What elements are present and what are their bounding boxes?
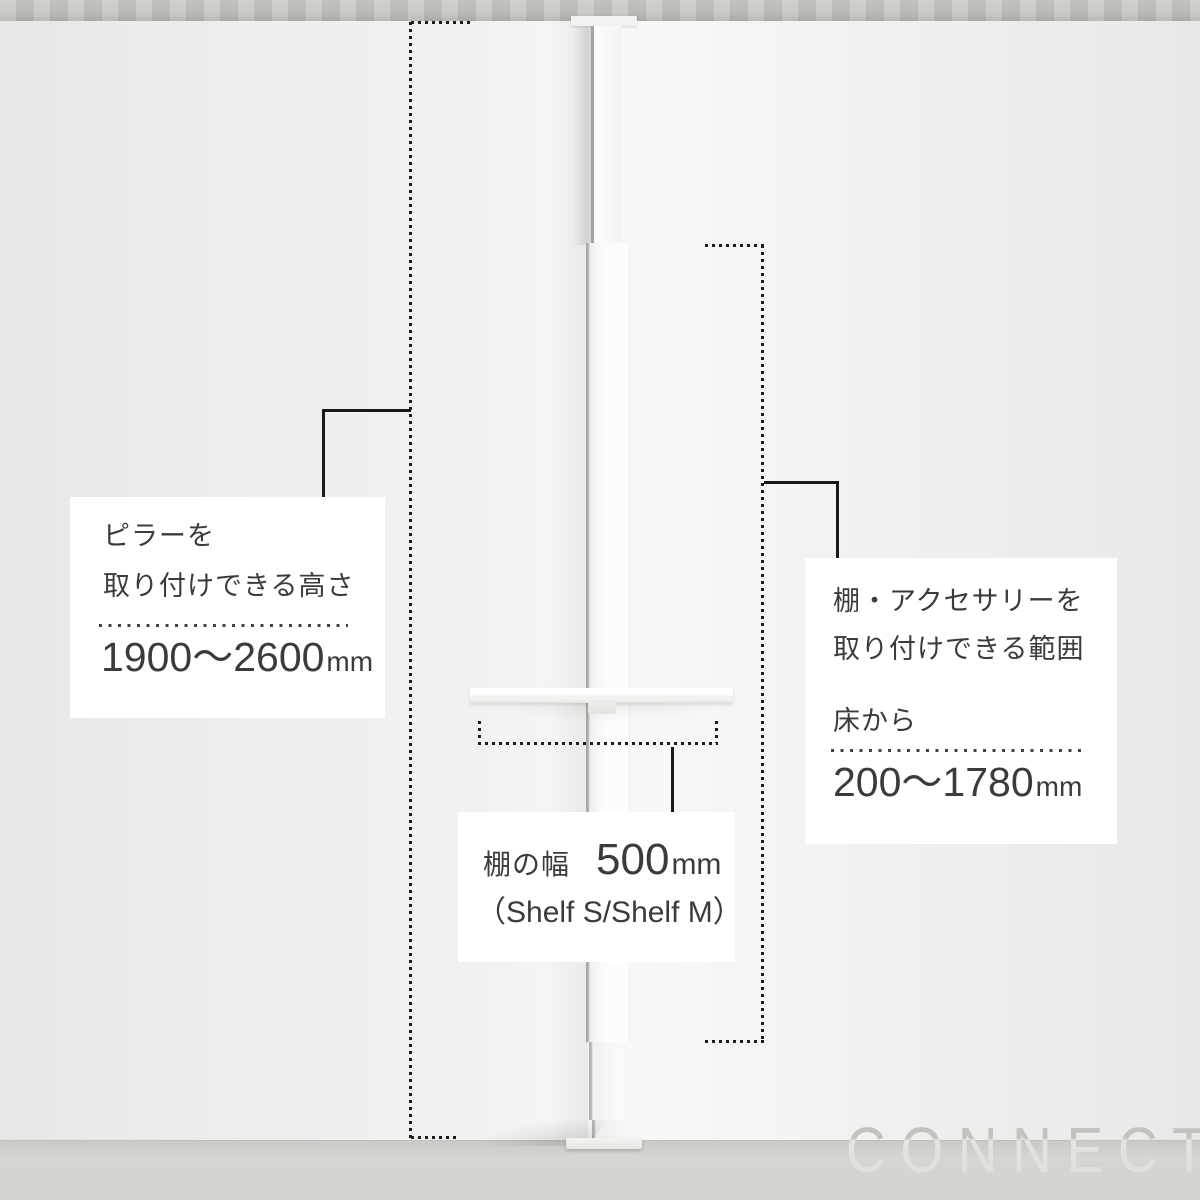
pillar-height-value-row: 1900〜2600mm xyxy=(101,637,373,678)
connect-watermark: CONNECT xyxy=(846,1110,1200,1190)
pole-upper-section xyxy=(594,26,622,245)
mount-range-unit: mm xyxy=(1036,773,1083,801)
pillar-height-label-line1: ピラーを xyxy=(103,523,215,550)
mount-range-value-row: 200〜1780mm xyxy=(833,762,1082,803)
shelf-width-value-row: 棚の幅 500mm xyxy=(483,838,721,882)
shelf-width-right-tick xyxy=(715,721,718,743)
pillar-height-label-line2: 取り付けできる高さ xyxy=(103,573,354,600)
mount-range-label-line2: 取り付けできる範囲 xyxy=(833,636,1084,663)
mount-range-dotted-line xyxy=(761,245,764,1043)
mount-range-label-line1: 棚・アクセサリーを xyxy=(833,588,1084,615)
pillar-range-bottom-tick xyxy=(411,1136,460,1139)
pole-top-plate xyxy=(571,16,637,26)
mount-leader-vertical xyxy=(836,481,839,559)
callout-mount-range: 棚・アクセサリーを 取り付けできる範囲 床から 200〜1780mm xyxy=(805,558,1117,844)
pole-upper-shadow xyxy=(573,26,591,245)
pole-base-plate xyxy=(566,1138,642,1149)
shelf-bracket xyxy=(588,702,616,714)
mount-range-top-tick xyxy=(705,244,764,247)
pillar-height-unit: mm xyxy=(326,648,373,676)
pole-lower-section xyxy=(589,1042,622,1120)
mount-leader-horizontal xyxy=(764,481,839,484)
shelf-width-unit: mm xyxy=(671,850,721,880)
mount-range-value: 200〜1780 xyxy=(833,762,1034,803)
pillar-height-value: 1900〜2600 xyxy=(101,637,324,678)
callout-pillar-height: ピラーを 取り付けできる高さ 1900〜2600mm xyxy=(70,497,385,718)
pillar-height-separator xyxy=(99,624,348,627)
pillar-range-dotted-line xyxy=(409,22,412,1139)
shelf-width-label: 棚の幅 xyxy=(483,851,570,879)
shelf-width-note: （Shelf S/Shelf M） xyxy=(476,898,743,928)
mount-range-separator xyxy=(831,749,1081,752)
mount-range-bottom-tick xyxy=(705,1040,764,1043)
shelf-width-left-tick xyxy=(478,721,481,743)
pillar-leader-horizontal xyxy=(322,409,411,412)
shelf-board xyxy=(470,688,733,703)
pillar-leader-vertical xyxy=(322,409,325,498)
callout-shelf-width: 棚の幅 500mm （Shelf S/Shelf M） xyxy=(458,812,735,962)
product-photo-scene: ピラーを 取り付けできる高さ 1900〜2600mm 棚・アクセサリーを 取り付… xyxy=(0,0,1200,1200)
shelf-width-value: 500 xyxy=(596,838,669,882)
mount-range-floor-prefix: 床から xyxy=(833,708,917,735)
shelf-width-dotted-line xyxy=(478,742,718,745)
shelf-leader-vertical xyxy=(671,747,674,813)
pillar-range-top-tick xyxy=(411,21,473,24)
